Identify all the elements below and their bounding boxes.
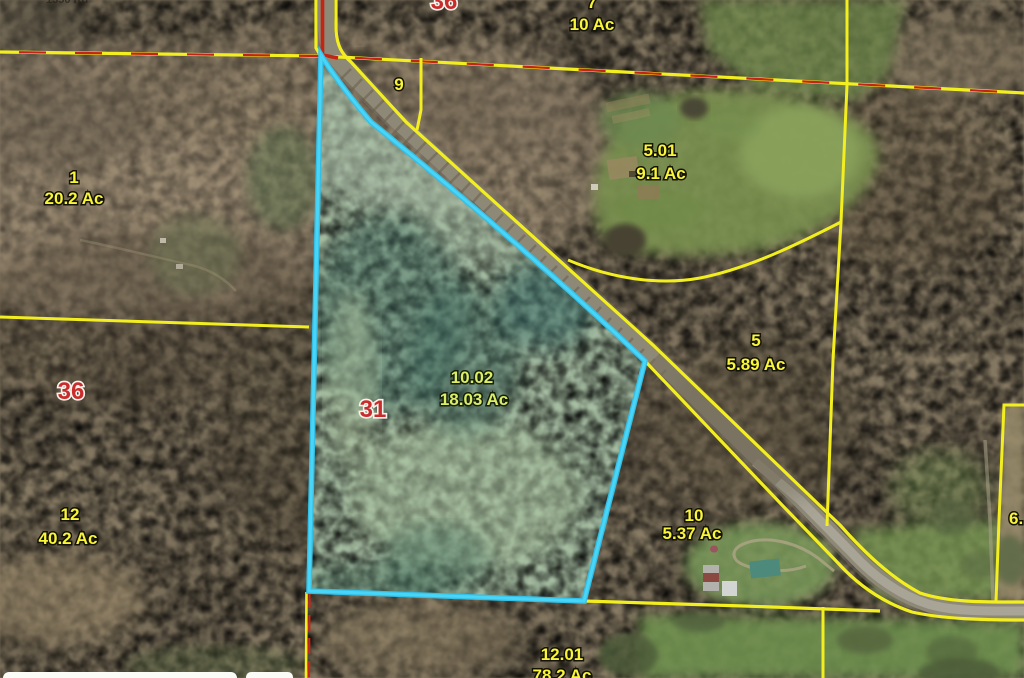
svg-text:20.2 Ac: 20.2 Ac [45, 189, 104, 208]
svg-text:36: 36 [58, 378, 85, 405]
svg-text:7: 7 [587, 0, 596, 12]
svg-text:10.02: 10.02 [451, 368, 494, 387]
svg-text:5.89 Ac: 5.89 Ac [727, 355, 786, 374]
svg-text:12: 12 [61, 505, 80, 524]
svg-text:10: 10 [685, 506, 704, 525]
svg-text:5: 5 [751, 331, 760, 350]
svg-text:31: 31 [360, 396, 387, 423]
svg-text:9.1 Ac: 9.1 Ac [636, 164, 685, 183]
svg-text:36: 36 [431, 0, 458, 15]
svg-text:12.01: 12.01 [541, 645, 584, 664]
svg-text:1350 Rd: 1350 Rd [46, 0, 88, 6]
svg-text:40.2 Ac: 40.2 Ac [39, 529, 98, 548]
svg-text:1: 1 [69, 168, 78, 187]
svg-text:10 Ac: 10 Ac [570, 15, 615, 34]
svg-text:18.03 Ac: 18.03 Ac [440, 390, 508, 409]
svg-text:5.01: 5.01 [643, 141, 676, 160]
svg-text:6.: 6. [1009, 509, 1023, 528]
svg-text:5.37 Ac: 5.37 Ac [663, 524, 722, 543]
svg-text:78.2 Ac: 78.2 Ac [533, 666, 592, 678]
svg-text:9: 9 [394, 75, 403, 94]
